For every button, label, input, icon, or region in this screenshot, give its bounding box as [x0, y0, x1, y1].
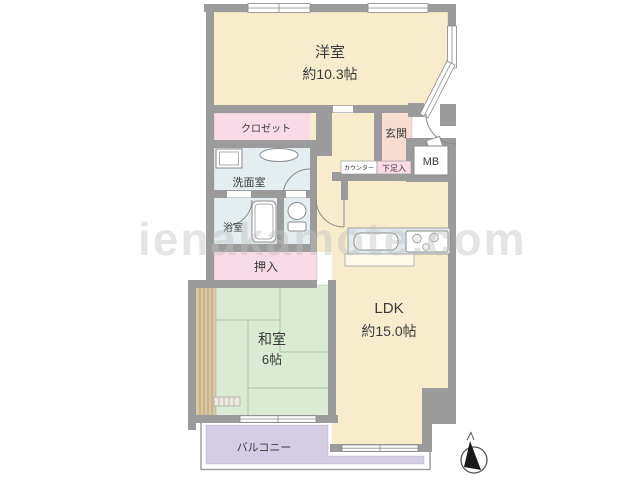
label-counter: カウンター: [344, 164, 374, 172]
label-washroom: 洗面室: [233, 175, 266, 189]
label-washitsu: 和室: [258, 331, 286, 347]
label-yoshitsu: 洋室: [315, 44, 345, 61]
label-ldk: LDK: [374, 300, 403, 317]
washing-machine-inner: [220, 152, 239, 165]
room-ldk-floor: [332, 180, 450, 392]
door-opening-bathroom: [227, 191, 251, 198]
label-ldk-size: 約15.0帖: [361, 323, 416, 339]
step-hatch: [214, 397, 240, 406]
wall-yoshitsu-south: [206, 105, 424, 113]
room-ldk-lower-floor: [332, 390, 428, 446]
door-opening-yoshitsu: [333, 106, 353, 113]
room-yoshitsu-floor: [212, 12, 448, 113]
wall-genkan-west: [374, 105, 382, 162]
wall-ldk-door-stub: [341, 176, 348, 200]
compass-north-icon: [461, 433, 487, 474]
floor-plan-canvas: 洋室 約10.3帖 クロゼット 洗面室 浴室 押入 和室 6帖 LDK 約15.…: [0, 0, 640, 480]
vanity-sink: [260, 149, 298, 162]
veranda-strip: [196, 288, 216, 415]
wall-entry-corner: [440, 104, 456, 126]
label-yoshitsu-size: 約10.3帖: [302, 66, 357, 82]
wall-west-lower: [188, 280, 196, 430]
watermark: ienakamote.com: [138, 213, 526, 265]
wall-washitsu-east: [328, 280, 336, 423]
door-opening-toilet: [286, 191, 306, 198]
wall-east-ldk: [448, 178, 456, 392]
wall-oshiire-south: [206, 280, 317, 288]
label-closet: クロゼット: [241, 123, 291, 135]
veranda-floor: [196, 288, 216, 415]
floor-plan: 洋室 約10.3帖 クロゼット 洗面室 浴室 押入 和室 6帖 LDK 約15.…: [0, 0, 640, 480]
label-genkan: 玄関: [385, 126, 407, 140]
label-shoe-box: 下足入: [382, 164, 406, 173]
label-balcony: バルコニー: [237, 441, 292, 454]
label-meter-box: MB: [423, 156, 440, 168]
wall-ldk-corner-block: [422, 388, 456, 424]
label-washitsu-size: 6帖: [262, 352, 282, 367]
